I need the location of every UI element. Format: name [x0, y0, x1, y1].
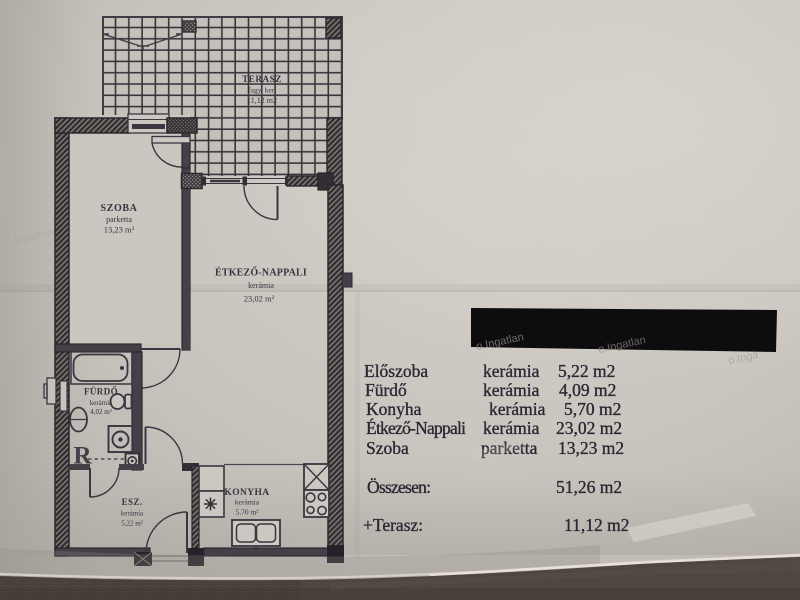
svg-text:kerámia: kerámia [90, 399, 113, 407]
svg-text:ESZ.: ESZ. [122, 497, 143, 507]
svg-text:Étkező-Nappali: Étkező-Nappali [366, 418, 466, 438]
svg-text:51,26 m2: 51,26 m2 [556, 477, 622, 497]
svg-text:5,22 m2: 5,22 m2 [558, 361, 615, 381]
svg-text:kerámia: kerámia [489, 399, 546, 419]
svg-text:Összesen:: Összesen: [367, 477, 431, 497]
svg-text:5.70 m²: 5.70 m² [235, 508, 259, 517]
svg-text:23,02 m²: 23,02 m² [244, 294, 275, 304]
svg-text:4,02 m²: 4,02 m² [90, 408, 112, 416]
svg-text:+Terasz:: +Terasz: [363, 515, 423, 535]
svg-text:23,02 m2: 23,02 m2 [556, 418, 622, 438]
svg-text:4,09 m2: 4,09 m2 [559, 380, 616, 400]
svg-text:TERASZ: TERASZ [242, 74, 282, 84]
svg-text:SZOBA: SZOBA [101, 203, 138, 214]
svg-text:11,12 m2: 11,12 m2 [564, 515, 629, 535]
svg-text:13,23 m2: 13,23 m2 [558, 438, 624, 458]
svg-text:kerámia: kerámia [235, 498, 260, 507]
svg-text:kerámia: kerámia [483, 418, 540, 438]
svg-text:FÜRDŐ: FÜRDŐ [84, 387, 118, 397]
svg-text:kerámia: kerámia [483, 380, 540, 400]
svg-text:Előszoba: Előszoba [364, 361, 428, 381]
svg-text:5,70 m2: 5,70 m2 [564, 399, 621, 419]
svg-text:Szoba: Szoba [366, 438, 409, 458]
svg-text:5,22 m²: 5,22 m² [121, 520, 143, 528]
svg-text:parketta: parketta [106, 215, 132, 224]
svg-text:ÉTKEZŐ-NAPPALI: ÉTKEZŐ-NAPPALI [215, 267, 307, 279]
svg-text:Konyha: Konyha [366, 399, 422, 419]
svg-text:fagy. ker.: fagy. ker. [248, 86, 276, 95]
svg-text:kerámia: kerámia [121, 510, 144, 518]
svg-text:kerámia: kerámia [248, 281, 274, 290]
svg-text:KONYHA: KONYHA [224, 488, 269, 498]
svg-text:11,12 m2: 11,12 m2 [247, 96, 277, 105]
svg-text:Fürdő: Fürdő [365, 380, 407, 400]
svg-text:13,23 m²: 13,23 m² [104, 225, 135, 235]
svg-text:kerámia: kerámia [483, 361, 540, 381]
